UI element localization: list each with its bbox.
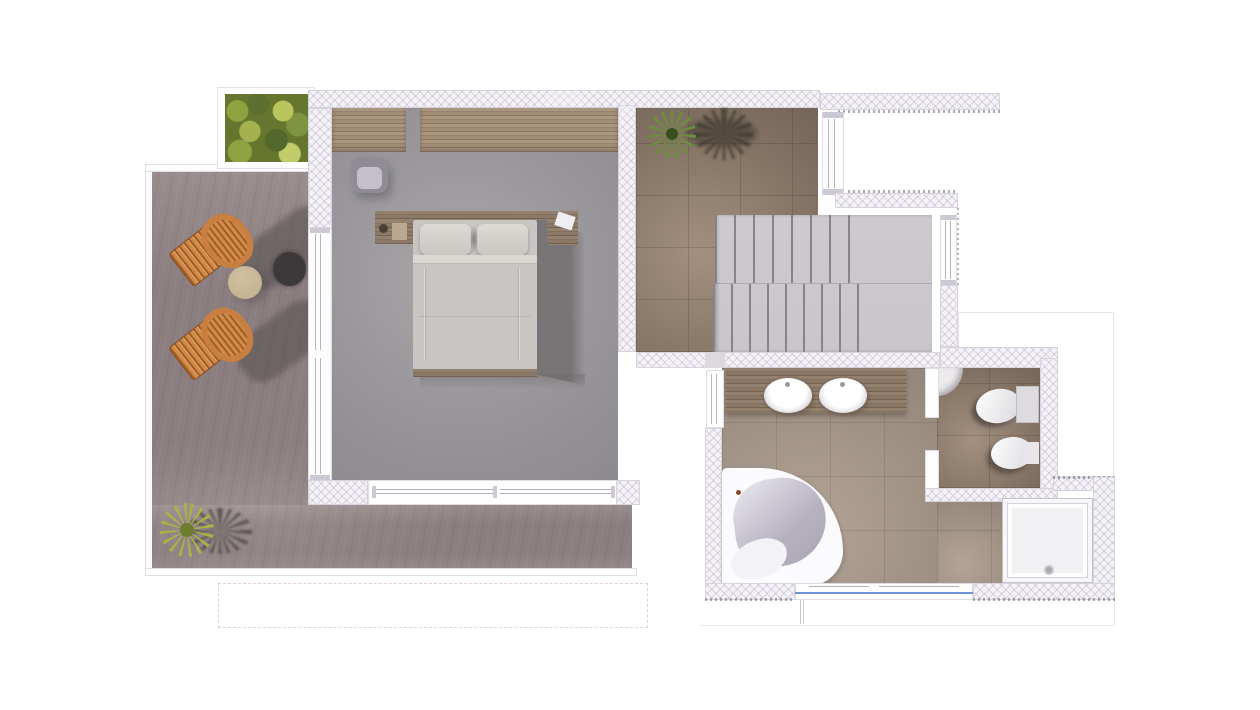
wall-hall-south xyxy=(636,352,940,368)
window-bedroom-west xyxy=(308,228,332,480)
wall-trim-dotted-east xyxy=(957,208,959,288)
wardrobe-left xyxy=(332,108,406,152)
stair-treads-lower-flight xyxy=(713,284,871,352)
hall-plant-frond-shadow xyxy=(695,108,753,160)
vanity-sink-right xyxy=(819,378,867,413)
side-table-dark xyxy=(273,252,306,286)
wall-trim-dotted-south-east xyxy=(973,598,1115,601)
stair-landing-divider xyxy=(715,283,932,284)
stair-treads-upper-flight xyxy=(715,215,855,283)
hall-plant-center xyxy=(666,128,678,140)
shower-tray-floor xyxy=(1012,508,1083,573)
shower-tray xyxy=(1002,498,1093,583)
bathroom-floor-east xyxy=(937,502,1002,585)
window-landing-east xyxy=(940,215,957,285)
faint-outline-lower-floor xyxy=(218,583,648,628)
sheet-fold-band xyxy=(413,255,537,264)
bidet-back xyxy=(1023,442,1039,464)
duvet-fold-left xyxy=(425,268,426,360)
wall-wc-west-upper xyxy=(925,368,939,418)
wall-bathroom-west xyxy=(705,428,722,600)
wall-landing-north xyxy=(835,193,958,208)
wall-wc-west-lower xyxy=(925,450,939,490)
bottle xyxy=(379,224,388,233)
vanity-sink-left xyxy=(764,378,812,413)
wall-bedroom-right xyxy=(618,105,636,352)
wardrobe-right xyxy=(420,108,618,152)
wall-landing-east xyxy=(940,285,958,347)
wall-trim-dotted-south xyxy=(705,598,795,601)
armchair xyxy=(351,157,388,193)
armchair-seat xyxy=(357,167,382,189)
wall-bedroom-left-upper xyxy=(308,108,332,228)
side-table-beige xyxy=(228,266,262,299)
wall-shower-east xyxy=(1093,477,1115,600)
pillow-left xyxy=(420,224,471,255)
wall-bedroom-bottom-left xyxy=(308,480,368,505)
wall-bedroom-top xyxy=(308,90,820,108)
window-glass-line xyxy=(795,592,973,594)
faint-mullion-below xyxy=(800,600,804,624)
terrace-plant-center xyxy=(180,523,194,537)
terrace-border-bottom xyxy=(145,568,637,576)
faint-balcony-line xyxy=(700,600,1115,626)
floor-plan-canvas xyxy=(0,0,1260,710)
bed-mattress xyxy=(413,220,537,373)
duvet-seam xyxy=(419,316,531,317)
door-bathroom xyxy=(706,370,724,428)
tray xyxy=(392,223,407,240)
bath-door-threshold xyxy=(705,352,725,368)
pillow-crease xyxy=(470,225,478,254)
bed-headboard xyxy=(375,211,578,220)
duvet-fold-right xyxy=(518,268,519,360)
bed-footboard xyxy=(413,369,537,377)
wall-bedroom-bottom-right-corner xyxy=(616,480,640,505)
wall-north-east xyxy=(820,93,1000,110)
planter-plants xyxy=(225,94,308,162)
pillow-right xyxy=(477,224,528,255)
wall-wc-east xyxy=(1040,358,1058,490)
toilet-cistern xyxy=(1016,386,1039,423)
nightstand-left xyxy=(375,220,413,244)
wall-trim-dotted-top xyxy=(838,110,1000,113)
window-bedroom-south xyxy=(368,480,618,505)
shower-drain xyxy=(1044,565,1054,575)
vanity-counter xyxy=(726,368,906,413)
door-hall-terrace xyxy=(822,112,844,195)
window-bathroom-south xyxy=(795,583,973,600)
bathtub-faucet xyxy=(736,490,741,495)
